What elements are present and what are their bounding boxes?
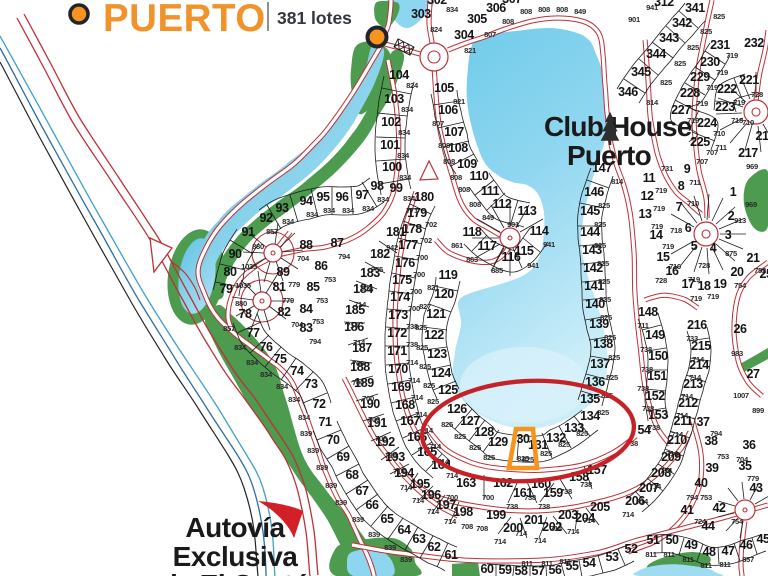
svg-text:825: 825 xyxy=(687,43,700,52)
svg-text:834: 834 xyxy=(401,105,414,114)
svg-text:779: 779 xyxy=(288,280,300,289)
svg-text:229: 229 xyxy=(690,70,710,84)
svg-text:173: 173 xyxy=(388,308,408,322)
svg-text:814: 814 xyxy=(611,177,624,186)
svg-text:825: 825 xyxy=(594,241,607,250)
svg-text:6: 6 xyxy=(685,221,692,235)
svg-text:342: 342 xyxy=(672,16,692,30)
svg-text:714: 714 xyxy=(408,376,421,385)
svg-text:700: 700 xyxy=(413,270,425,279)
svg-text:825: 825 xyxy=(600,313,613,322)
svg-text:811: 811 xyxy=(541,559,553,568)
svg-text:849: 849 xyxy=(482,213,494,222)
svg-text:738: 738 xyxy=(560,487,572,496)
svg-text:231: 231 xyxy=(710,38,730,52)
svg-text:825: 825 xyxy=(674,59,687,68)
svg-text:714: 714 xyxy=(429,442,442,451)
svg-text:814: 814 xyxy=(646,98,659,107)
svg-text:711: 711 xyxy=(689,178,701,187)
svg-text:20: 20 xyxy=(730,265,744,279)
svg-text:794: 794 xyxy=(338,252,351,261)
svg-text:839: 839 xyxy=(384,543,396,552)
svg-text:719: 719 xyxy=(726,51,738,60)
svg-text:941: 941 xyxy=(543,240,556,249)
svg-text:225: 225 xyxy=(690,135,710,149)
svg-text:738: 738 xyxy=(524,493,536,502)
svg-text:232: 232 xyxy=(744,36,764,50)
svg-text:30: 30 xyxy=(516,432,530,446)
svg-text:381 lotes: 381 lotes xyxy=(277,8,352,28)
svg-text:de El Cantó: de El Cantó xyxy=(161,569,310,576)
svg-text:834: 834 xyxy=(398,128,411,137)
svg-text:825: 825 xyxy=(469,443,482,452)
svg-text:825: 825 xyxy=(441,420,454,429)
svg-text:719: 719 xyxy=(655,186,667,195)
svg-text:205: 205 xyxy=(590,500,610,514)
svg-text:808: 808 xyxy=(450,173,462,182)
svg-text:7: 7 xyxy=(676,200,683,214)
svg-text:714: 714 xyxy=(515,529,528,538)
svg-text:216: 216 xyxy=(687,318,707,332)
svg-text:1007: 1007 xyxy=(733,391,749,400)
svg-text:181: 181 xyxy=(386,225,406,239)
svg-text:111: 111 xyxy=(481,184,500,198)
svg-text:39: 39 xyxy=(705,461,719,475)
svg-text:1035: 1035 xyxy=(241,262,258,271)
svg-text:821: 821 xyxy=(427,283,440,292)
svg-text:230: 230 xyxy=(700,55,720,69)
svg-text:825: 825 xyxy=(598,201,611,210)
svg-text:728: 728 xyxy=(751,90,763,99)
svg-text:59: 59 xyxy=(498,563,512,576)
svg-text:341: 341 xyxy=(685,1,705,15)
svg-text:129: 129 xyxy=(488,435,508,449)
svg-text:719: 719 xyxy=(716,68,728,77)
svg-text:69: 69 xyxy=(336,450,350,464)
svg-text:346: 346 xyxy=(618,85,638,99)
svg-text:9: 9 xyxy=(684,162,691,176)
svg-text:105: 105 xyxy=(434,81,454,95)
svg-text:942: 942 xyxy=(386,243,398,252)
svg-text:344: 344 xyxy=(646,47,666,61)
svg-text:75: 75 xyxy=(273,352,287,366)
svg-text:839: 839 xyxy=(325,481,337,490)
svg-text:87: 87 xyxy=(330,236,344,250)
svg-text:825: 825 xyxy=(454,432,467,441)
svg-text:Club House: Club House xyxy=(544,111,692,142)
svg-text:794: 794 xyxy=(686,493,699,502)
svg-text:41: 41 xyxy=(680,503,694,517)
svg-text:825: 825 xyxy=(606,373,619,382)
svg-text:811: 811 xyxy=(645,550,657,559)
svg-text:199: 199 xyxy=(486,508,506,522)
svg-text:171: 171 xyxy=(387,344,407,358)
svg-text:714: 714 xyxy=(676,411,689,420)
svg-text:834: 834 xyxy=(282,217,295,226)
svg-text:834: 834 xyxy=(446,5,459,14)
svg-text:839: 839 xyxy=(307,446,319,455)
svg-text:700: 700 xyxy=(482,493,494,502)
svg-text:704: 704 xyxy=(736,455,749,464)
svg-text:753: 753 xyxy=(316,296,328,305)
svg-text:11: 11 xyxy=(643,171,656,185)
svg-text:821: 821 xyxy=(464,46,477,55)
svg-text:811: 811 xyxy=(559,557,571,566)
svg-text:107: 107 xyxy=(444,125,464,139)
svg-text:807: 807 xyxy=(484,30,496,39)
svg-text:825: 825 xyxy=(558,440,571,449)
svg-text:834: 834 xyxy=(298,413,311,422)
svg-text:714: 714 xyxy=(427,507,440,516)
svg-text:825: 825 xyxy=(700,27,713,36)
svg-text:135: 135 xyxy=(580,392,600,406)
svg-text:71: 71 xyxy=(318,415,332,429)
svg-text:48: 48 xyxy=(702,545,716,559)
svg-text:305: 305 xyxy=(467,12,487,26)
svg-text:217: 217 xyxy=(738,146,758,160)
svg-text:863: 863 xyxy=(466,255,478,264)
svg-text:719: 719 xyxy=(662,242,674,251)
svg-text:37: 37 xyxy=(696,415,710,429)
svg-text:711: 711 xyxy=(715,143,727,152)
svg-text:113: 113 xyxy=(518,204,537,218)
svg-text:808: 808 xyxy=(438,141,450,150)
svg-text:700: 700 xyxy=(362,394,374,403)
svg-text:857: 857 xyxy=(742,555,754,564)
svg-text:825: 825 xyxy=(713,12,726,21)
svg-text:700: 700 xyxy=(410,287,422,296)
svg-text:176: 176 xyxy=(395,256,415,270)
svg-text:719: 719 xyxy=(651,222,663,231)
svg-text:880: 880 xyxy=(252,242,264,251)
svg-text:771: 771 xyxy=(406,206,419,215)
svg-text:52: 52 xyxy=(624,542,638,556)
svg-text:719: 719 xyxy=(706,83,718,92)
svg-text:983: 983 xyxy=(731,349,743,358)
svg-text:839: 839 xyxy=(368,530,380,539)
svg-text:26: 26 xyxy=(733,322,747,336)
svg-text:103: 103 xyxy=(384,92,404,106)
svg-text:825: 825 xyxy=(597,259,610,268)
svg-text:752: 752 xyxy=(754,266,766,275)
svg-text:224: 224 xyxy=(697,116,717,130)
svg-text:724: 724 xyxy=(694,517,707,526)
svg-text:779: 779 xyxy=(747,474,759,483)
svg-text:714: 714 xyxy=(411,393,424,402)
svg-text:969: 969 xyxy=(746,162,758,171)
svg-text:700: 700 xyxy=(375,434,387,443)
svg-text:312: 312 xyxy=(654,0,674,9)
svg-text:68: 68 xyxy=(345,468,359,482)
svg-text:98: 98 xyxy=(370,179,384,193)
svg-text:821: 821 xyxy=(453,97,466,106)
svg-text:124: 124 xyxy=(431,366,451,380)
svg-text:738: 738 xyxy=(640,345,652,354)
svg-text:718: 718 xyxy=(670,226,682,235)
svg-text:116: 116 xyxy=(502,250,521,264)
svg-text:825: 825 xyxy=(594,220,607,229)
svg-text:704: 704 xyxy=(297,254,310,263)
svg-text:62: 62 xyxy=(427,540,441,554)
svg-text:700: 700 xyxy=(446,493,458,502)
svg-text:825: 825 xyxy=(423,381,436,390)
svg-text:808: 808 xyxy=(458,185,470,194)
svg-text:824: 824 xyxy=(406,81,419,90)
svg-text:825: 825 xyxy=(608,353,621,362)
svg-text:738: 738 xyxy=(641,365,653,374)
svg-text:708: 708 xyxy=(461,522,473,531)
svg-text:15: 15 xyxy=(656,250,670,264)
svg-text:714: 714 xyxy=(636,497,649,506)
svg-text:304: 304 xyxy=(454,28,474,42)
svg-text:8: 8 xyxy=(678,179,685,193)
svg-text:64: 64 xyxy=(397,523,411,537)
svg-text:60: 60 xyxy=(480,562,494,576)
svg-text:719: 719 xyxy=(653,204,665,213)
svg-text:110: 110 xyxy=(470,169,489,183)
svg-text:808: 808 xyxy=(469,200,481,209)
svg-text:93: 93 xyxy=(275,201,289,215)
svg-text:834: 834 xyxy=(397,151,410,160)
svg-text:753: 753 xyxy=(324,275,336,284)
svg-text:97: 97 xyxy=(355,188,369,202)
svg-text:857: 857 xyxy=(223,324,235,333)
svg-text:123: 123 xyxy=(427,347,447,361)
svg-text:825: 825 xyxy=(419,362,432,371)
svg-text:839: 839 xyxy=(335,498,347,507)
svg-text:53: 53 xyxy=(605,550,619,564)
svg-text:738: 738 xyxy=(642,404,654,413)
svg-text:794: 794 xyxy=(309,337,322,346)
svg-text:834: 834 xyxy=(260,370,273,379)
svg-text:714: 714 xyxy=(550,524,563,533)
svg-text:827: 827 xyxy=(419,302,431,311)
svg-text:47: 47 xyxy=(721,544,735,558)
svg-text:714: 714 xyxy=(692,355,705,364)
svg-text:PUERTO: PUERTO xyxy=(103,0,266,40)
svg-text:27: 27 xyxy=(746,367,760,381)
svg-text:714: 714 xyxy=(567,527,580,536)
svg-text:36: 36 xyxy=(742,438,756,452)
svg-text:808: 808 xyxy=(538,5,550,14)
svg-text:714: 714 xyxy=(622,510,635,519)
svg-text:714: 714 xyxy=(583,516,596,525)
svg-text:753: 753 xyxy=(312,317,324,326)
svg-text:901: 901 xyxy=(628,15,641,24)
svg-text:834: 834 xyxy=(399,173,412,182)
svg-text:834: 834 xyxy=(342,206,355,215)
svg-text:112: 112 xyxy=(493,197,512,211)
svg-text:70: 70 xyxy=(326,433,340,447)
svg-text:714: 714 xyxy=(444,517,457,526)
svg-text:50: 50 xyxy=(665,533,679,547)
svg-text:228: 228 xyxy=(680,86,700,100)
svg-text:719: 719 xyxy=(696,99,708,108)
svg-text:80: 80 xyxy=(223,265,237,279)
svg-text:808: 808 xyxy=(520,7,532,16)
svg-text:18: 18 xyxy=(697,279,711,293)
svg-text:72: 72 xyxy=(312,397,326,411)
svg-text:714: 714 xyxy=(412,496,425,505)
svg-text:714: 714 xyxy=(649,482,662,491)
svg-text:811: 811 xyxy=(521,559,533,568)
svg-text:834: 834 xyxy=(377,195,390,204)
svg-text:102: 102 xyxy=(381,115,401,129)
svg-text:180: 180 xyxy=(414,190,434,204)
svg-text:825: 825 xyxy=(604,333,617,342)
svg-text:941: 941 xyxy=(527,261,540,270)
svg-text:834: 834 xyxy=(306,210,319,219)
svg-text:728: 728 xyxy=(655,276,667,285)
svg-text:108: 108 xyxy=(448,141,468,155)
svg-text:825: 825 xyxy=(660,78,673,87)
svg-text:811: 811 xyxy=(663,550,675,559)
svg-text:834: 834 xyxy=(323,206,336,215)
svg-text:99: 99 xyxy=(389,181,403,195)
svg-text:172: 172 xyxy=(387,326,407,340)
svg-text:714: 714 xyxy=(681,392,694,401)
svg-text:824: 824 xyxy=(430,25,443,34)
svg-text:808: 808 xyxy=(502,17,514,26)
svg-text:825: 825 xyxy=(427,397,440,406)
svg-text:714: 714 xyxy=(400,483,413,492)
svg-text:96: 96 xyxy=(335,190,349,204)
svg-text:779: 779 xyxy=(282,296,294,305)
svg-text:74: 74 xyxy=(290,364,304,378)
svg-text:4: 4 xyxy=(710,241,717,255)
svg-text:82: 82 xyxy=(277,305,291,319)
svg-text:46: 46 xyxy=(739,538,753,552)
svg-text:90: 90 xyxy=(228,247,242,261)
svg-text:825: 825 xyxy=(599,295,612,304)
svg-text:125: 125 xyxy=(438,383,458,397)
svg-text:714: 714 xyxy=(494,537,507,546)
svg-text:67: 67 xyxy=(355,484,369,498)
svg-text:63: 63 xyxy=(412,532,426,546)
svg-text:849: 849 xyxy=(574,7,586,16)
svg-text:738: 738 xyxy=(580,480,592,489)
svg-text:719: 719 xyxy=(690,294,702,303)
svg-text:839: 839 xyxy=(352,515,364,524)
svg-text:825: 825 xyxy=(598,277,611,286)
svg-text:76: 76 xyxy=(259,340,273,354)
svg-text:81: 81 xyxy=(272,280,286,294)
svg-text:711: 711 xyxy=(637,321,649,330)
svg-text:714: 714 xyxy=(415,410,428,419)
svg-text:700: 700 xyxy=(352,359,364,368)
svg-text:65: 65 xyxy=(380,512,394,526)
svg-text:86: 86 xyxy=(314,259,328,273)
svg-text:714: 714 xyxy=(353,338,366,347)
svg-text:719: 719 xyxy=(707,292,719,301)
svg-text:343: 343 xyxy=(659,31,679,45)
svg-text:92: 92 xyxy=(259,211,273,225)
svg-text:175: 175 xyxy=(392,273,412,287)
svg-text:702: 702 xyxy=(425,220,437,229)
svg-text:104: 104 xyxy=(389,68,409,82)
svg-text:714: 714 xyxy=(534,536,547,545)
svg-text:710: 710 xyxy=(713,129,725,138)
svg-text:12: 12 xyxy=(640,189,654,203)
svg-text:66: 66 xyxy=(365,498,379,512)
svg-text:969: 969 xyxy=(745,200,757,209)
svg-text:307: 307 xyxy=(502,0,522,6)
svg-text:345: 345 xyxy=(631,65,651,79)
svg-text:899: 899 xyxy=(752,406,764,415)
svg-text:40: 40 xyxy=(694,476,708,490)
svg-text:119: 119 xyxy=(439,268,458,282)
svg-text:148: 148 xyxy=(638,305,658,319)
svg-text:61: 61 xyxy=(444,548,458,562)
svg-text:78: 78 xyxy=(238,307,252,321)
svg-text:303: 303 xyxy=(411,7,431,21)
svg-text:45: 45 xyxy=(756,532,768,546)
svg-text:21: 21 xyxy=(746,251,760,265)
svg-text:714: 714 xyxy=(689,373,702,382)
svg-text:708: 708 xyxy=(476,524,488,533)
svg-text:825: 825 xyxy=(483,453,496,462)
svg-text:94: 94 xyxy=(299,194,313,208)
svg-text:754: 754 xyxy=(734,281,747,290)
svg-text:834: 834 xyxy=(288,395,301,404)
svg-text:834: 834 xyxy=(246,358,259,367)
svg-text:719: 719 xyxy=(669,262,681,271)
svg-text:733: 733 xyxy=(686,334,698,343)
svg-text:118: 118 xyxy=(463,225,482,239)
svg-text:21: 21 xyxy=(755,129,768,143)
svg-text:807: 807 xyxy=(432,119,444,128)
svg-text:174: 174 xyxy=(390,290,410,304)
svg-text:700: 700 xyxy=(416,253,428,262)
svg-text:834: 834 xyxy=(362,204,375,213)
svg-text:839: 839 xyxy=(316,463,328,472)
svg-text:73: 73 xyxy=(304,377,318,391)
svg-text:198: 198 xyxy=(453,505,473,519)
svg-text:753: 753 xyxy=(700,493,712,502)
svg-text:222: 222 xyxy=(717,82,737,96)
svg-text:808: 808 xyxy=(556,5,568,14)
svg-text:808: 808 xyxy=(443,157,455,166)
svg-text:707: 707 xyxy=(696,157,708,166)
svg-text:122: 122 xyxy=(424,328,444,342)
svg-text:51: 51 xyxy=(646,533,660,547)
svg-text:13: 13 xyxy=(638,207,652,221)
svg-text:738: 738 xyxy=(506,502,518,511)
svg-text:1: 1 xyxy=(730,185,737,199)
svg-text:738: 738 xyxy=(637,384,649,393)
svg-text:702: 702 xyxy=(420,236,432,245)
svg-text:738: 738 xyxy=(538,502,550,511)
svg-text:95: 95 xyxy=(316,190,330,204)
svg-text:839: 839 xyxy=(400,555,412,564)
svg-text:Autovía: Autovía xyxy=(185,512,285,543)
svg-text:834: 834 xyxy=(276,382,289,391)
svg-text:49: 49 xyxy=(684,538,698,552)
svg-text:Exclusiva: Exclusiva xyxy=(173,541,299,572)
svg-text:3: 3 xyxy=(725,228,732,242)
svg-text:794: 794 xyxy=(710,429,723,438)
svg-text:84: 84 xyxy=(299,302,313,316)
svg-text:861: 861 xyxy=(451,241,464,250)
svg-text:77: 77 xyxy=(246,326,260,340)
svg-text:54: 54 xyxy=(637,423,651,437)
svg-text:839: 839 xyxy=(300,429,312,438)
svg-text:302: 302 xyxy=(427,0,447,7)
svg-text:714: 714 xyxy=(385,451,398,460)
svg-text:811: 811 xyxy=(719,560,731,569)
svg-text:825: 825 xyxy=(517,454,530,463)
svg-text:714: 714 xyxy=(354,300,367,309)
